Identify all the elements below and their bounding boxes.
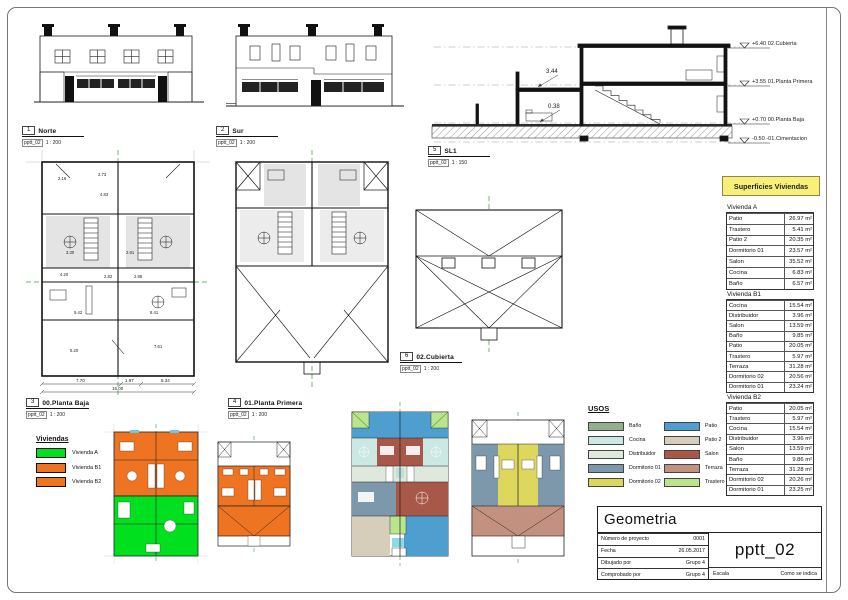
room-area: 13.59 m² [784,445,813,454]
level-labels: +6.40 02.Cubierta +3.55 01.Planta Primer… [752,41,813,142]
svg-text:7.70: 7.70 [76,378,85,383]
room-name: Dormitorio 01 [727,246,784,256]
legend-label: Vivienda B1 [72,465,101,471]
legend-item: Dormitorio 01 [588,461,664,475]
escala-label: Escala [713,571,729,577]
room-area: 20.05 m² [784,342,813,351]
room-name: Cocina [727,301,784,310]
room-name: Cocina [727,268,784,278]
view-title-norte: 1Norte pptt_021 : 200 [22,126,84,147]
table-row: Salon 35.52 m² [727,256,813,267]
table-row: Distribuidor 3.96 m² [727,310,813,320]
table-row: Trastero 5.97 m² [727,413,813,423]
escala-value: Como se indica [780,571,817,577]
section-dimensions: 3.44 0.38 [538,69,560,122]
color-swatch [588,436,624,445]
planta-primera-plan [220,150,404,398]
room-area: 5.97 m² [784,414,813,423]
legend-item: Terraza [664,461,728,475]
room-name: Dormitorio 02 [727,372,784,381]
terraza-zone [472,506,564,536]
legend-label: Distribuidor [629,451,656,457]
color-swatch [588,464,624,473]
room-name: Dormitorio 01 [727,486,784,495]
usos-legend: USOS Baño Cocina Distribuidor [588,404,728,489]
legend-label: Vivienda B2 [72,479,101,485]
table-row: Trastero 5.97 m² [727,351,813,361]
color-swatch [36,477,66,487]
svg-text:2.73: 2.73 [98,172,107,177]
room-name: Trastero [727,352,784,361]
room-area: 15.54 m² [784,301,813,310]
room-name: Salon [727,257,784,267]
view-title-sl1: 5SL1 pptt_021 : 150 [428,146,490,167]
field-label: Comprobado por [601,572,641,578]
room-name: Baño [727,279,784,289]
stair-section [595,86,660,124]
room-area: 20.26 m² [784,475,813,484]
south-elevation-drawing [226,22,404,122]
room-name: Dormitorio 02 [727,475,784,484]
room-name: Salon [727,321,784,330]
room-name: Terraza [727,362,784,371]
table-row: Dormitorio 02 20.26 m² [727,474,813,484]
room-name: Patio [727,404,784,413]
legend-label: Patio 2 [705,437,722,443]
color-swatch [36,463,66,473]
legend-item: Trastero [664,475,728,489]
room-name: Dormitorio 01 [727,383,784,392]
field-value: Grupo 4 [686,560,705,566]
room-area: 20.56 m² [784,372,813,381]
table-row: Dormitorio 01 23.24 m² [727,382,813,392]
project-title: Geometria [598,507,821,533]
bed-symbol [526,110,552,121]
legend-item: Baño [588,419,664,433]
legend-item: Patio 2 [664,433,728,447]
legend-label: Salon [705,451,719,457]
legend-item: Vivienda B1 [36,463,101,473]
legend-item: Vivienda A [36,448,101,458]
room-name: Baño [727,332,784,341]
room-name: Patio 2 [727,236,784,246]
chimneys [238,24,384,36]
field-value: Grupo 4 [686,572,705,578]
table-row: Trastero 5.41 m² [727,224,813,235]
table-row: Patio 20.05 m² [727,341,813,351]
field-value: 0001 [693,536,705,542]
view-title-baja: 300.Planta Baja pptt_021 : 200 [26,398,89,419]
view-number: 1 [22,126,35,135]
field-label: Dibujado por [601,560,631,566]
color-swatch [664,422,700,431]
svg-text:2.88: 2.88 [134,274,143,279]
room-area: 20.05 m² [784,404,813,413]
room-name: Baño [727,455,784,464]
chimneys [42,24,186,36]
svg-text:5.42: 5.42 [74,310,83,315]
room-area: 26.97 m² [784,214,813,224]
table-row: Distribuidor 3.96 m² [727,434,813,444]
field-label: Número de proyecto [601,536,649,542]
table-row: Dormitorio 01 23.25 m² [727,485,813,495]
svg-text:5.20: 5.20 [70,348,79,353]
view-title-primera: 401.Planta Primera pptt_021 : 200 [228,398,302,419]
sheet-code: pptt_02 [709,533,821,567]
room-name: Distribuidor [727,311,784,320]
table-row: Baño 9.86 m² [727,454,813,464]
superficies-header: Superficies Viviendas [722,176,820,196]
color-swatch [664,478,700,487]
legend-item: Dormitorio 02 [588,475,664,489]
table-row: Patio 26.97 m² [727,213,813,224]
legend-label: Dormitorio 02 [629,479,661,485]
room-area: 5.41 m² [784,225,813,235]
table-row: Cocina 15.54 m² [727,300,813,310]
table-row: Cocina 6.83 m² [727,267,813,278]
room-name: Cocina [727,424,784,433]
room-area: 23.25 m² [784,486,813,495]
room-area: 20.35 m² [784,236,813,246]
color-swatch [664,450,700,459]
legend-label: Patio [705,423,717,429]
table-heading-vivienda-b1: Vivienda B1 [727,291,761,298]
view-title-sur: 2Sur pptt_021 : 200 [216,126,278,147]
room-area: 13.59 m² [784,321,813,330]
room-area: 3.96 m² [784,435,813,444]
viviendas-first-plan-colored [210,436,298,554]
room-area: 31.28 m² [784,465,813,474]
viviendas-legend-title: Viviendas [36,436,101,443]
room-area: 9.86 m² [784,455,813,464]
room-area: 31.28 m² [784,362,813,371]
svg-text:7.61: 7.61 [154,344,163,349]
color-swatch [664,464,700,473]
svg-text:3.30: 3.30 [66,250,75,255]
view-title-cubierta: 602.Cubierta pptt_021 : 200 [400,352,462,373]
room-name: Patio [727,214,784,224]
title-block-row: Fecha 26.05.2017 [598,545,708,557]
south-door [311,80,321,106]
north-elevation-drawing [34,22,204,118]
room-area: 35.52 m² [784,257,813,267]
title-block: Geometria Número de proyecto 0001 Fecha … [597,506,822,580]
color-swatch [664,436,700,445]
color-swatch [36,448,66,458]
section-drawing: 3.44 0.38 +6.40 02.Cubierta +3.55 01.Pla… [430,16,834,152]
table-row: Cocina 15.54 m² [727,423,813,433]
table-row: Terraza 31.28 m² [727,464,813,474]
view-name: Norte [38,128,56,135]
room-name: Salon [727,445,784,454]
svg-text:5.34: 5.34 [161,378,170,383]
svg-text:4.20: 4.20 [60,272,69,277]
cubierta-plan [404,196,574,352]
legend-label: Trastero [705,479,725,485]
room-name: Terraza [727,465,784,474]
usos-first-plan-colored [464,412,572,564]
color-swatch [588,450,624,459]
legend-item: Vivienda B2 [36,477,101,487]
planta-baja-plan: 2.16 2.73 4.83 3.30 2.91 4.20 2.82 2.88 … [26,150,210,398]
title-block-row: Dibujado por Grupo 4 [598,557,708,569]
table-row: Salon 13.59 m² [727,444,813,454]
table-row: Terraza 31.28 m² [727,361,813,371]
title-block-fields: Número de proyecto 0001 Fecha 26.05.2017… [598,533,709,580]
viviendas-ground-plan-colored [104,424,208,564]
legend-label: Cocina [629,437,646,443]
table-vivienda-a: Patio 26.97 m² Trastero 5.41 m² Patio 2 … [726,212,814,290]
zone-roof [218,506,290,536]
legend-label: Terraza [705,465,723,471]
svg-text:+3.55 01.Planta Primera: +3.55 01.Planta Primera [752,79,813,85]
usos-legend-items: Baño Cocina Distribuidor Dormitorio 01 [588,419,728,489]
table-row: Baño 9.85 m² [727,331,813,341]
svg-text:15.00: 15.00 [112,386,124,391]
legend-item: Cocina [588,433,664,447]
dim-upper: 3.44 [546,69,558,75]
view-scale: 1 : 200 [46,140,61,146]
room-name: Distribuidor [727,435,784,444]
color-swatch [588,478,624,487]
svg-text:4.83: 4.83 [100,192,109,197]
room-area: 6.57 m² [784,279,813,289]
table-vivienda-b1: Cocina 15.54 m² Distribuidor 3.96 m² Sal… [726,299,814,393]
table-row: Patio 20.05 m² [727,403,813,413]
scale-row: Escala Como se indica [709,567,821,580]
dim-lower: 0.38 [548,104,560,110]
table-vivienda-b2: Patio 20.05 m² Trastero 5.97 m² Cocina 1… [726,402,814,496]
legend-label: Baño [629,423,641,429]
table-row: Patio 2 20.35 m² [727,235,813,246]
room-area: 23.24 m² [784,383,813,392]
room-area: 23.57 m² [784,246,813,256]
field-value: 26.05.2017 [678,548,705,554]
table-heading-vivienda-a: Vivienda A [727,204,757,211]
color-swatch [588,422,624,431]
svg-text:+6.40 02.Cubierta: +6.40 02.Cubierta [752,41,798,47]
table-row: Salon 13.59 m² [727,320,813,330]
room-area: 6.83 m² [784,268,813,278]
room-area: 5.97 m² [784,352,813,361]
table-row: Dormitorio 01 23.57 m² [727,245,813,256]
table-heading-vivienda-b2: Vivienda B2 [727,394,761,401]
level-markers [728,43,770,143]
title-block-row: Comprobado por Grupo 4 [598,568,708,580]
svg-text:8.41: 8.41 [150,310,159,315]
legend-item: Patio [664,419,728,433]
room-name: Patio [727,342,784,351]
legend-item: Salon [664,447,728,461]
svg-text:2.91: 2.91 [126,250,135,255]
legend-label: Vivienda A [72,450,98,456]
room-area: 15.54 m² [784,424,813,433]
svg-text:-0.50 -01.Cimentacion: -0.50 -01.Cimentacion [752,136,807,142]
field-label: Fecha [601,548,616,554]
table-row: Baño 6.57 m² [727,278,813,289]
usos-ground-plan-colored [342,402,458,566]
legend-label: Dormitorio 01 [629,465,661,471]
drawing-sheet: 3.44 0.38 +6.40 02.Cubierta +3.55 01.Pla… [0,0,848,600]
title-block-row: Número de proyecto 0001 [598,533,708,545]
svg-text:+0.70 00.Planta Baja: +0.70 00.Planta Baja [752,117,805,123]
room-name: Trastero [727,225,784,235]
legend-item: Distribuidor [588,447,664,461]
room-name: Trastero [727,414,784,423]
table-row: Dormitorio 02 20.56 m² [727,371,813,381]
room-area: 3.96 m² [784,311,813,320]
svg-text:2.82: 2.82 [104,274,113,279]
room-area: 9.85 m² [784,332,813,341]
sheet-ref: pptt_02 [22,139,43,147]
svg-text:1.97: 1.97 [125,378,134,383]
viviendas-legend: Viviendas Vivienda A Vivienda B1 Viviend… [36,436,101,492]
svg-text:2.16: 2.16 [58,176,67,181]
viviendas-legend-items: Vivienda A Vivienda B1 Vivienda B2 [36,448,101,487]
usos-legend-title: USOS [588,404,728,413]
